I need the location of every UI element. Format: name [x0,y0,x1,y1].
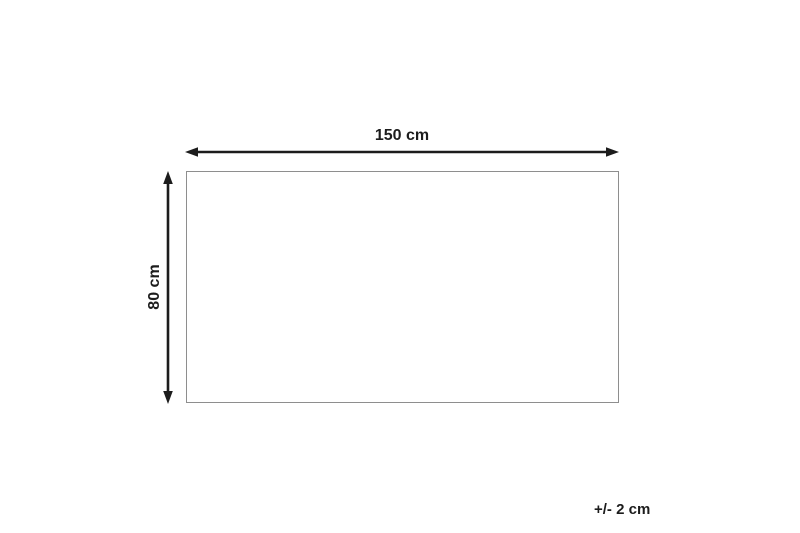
vertical-dimension-arrow [161,171,175,404]
product-outline-rectangle [186,171,619,403]
tolerance-label: +/- 2 cm [594,501,650,519]
width-dimension-label: 150 cm [185,128,619,144]
horizontal-dimension-arrow [185,145,619,159]
dimension-diagram-page: { "diagram": { "width_label": "150 cm", … [0,0,800,533]
